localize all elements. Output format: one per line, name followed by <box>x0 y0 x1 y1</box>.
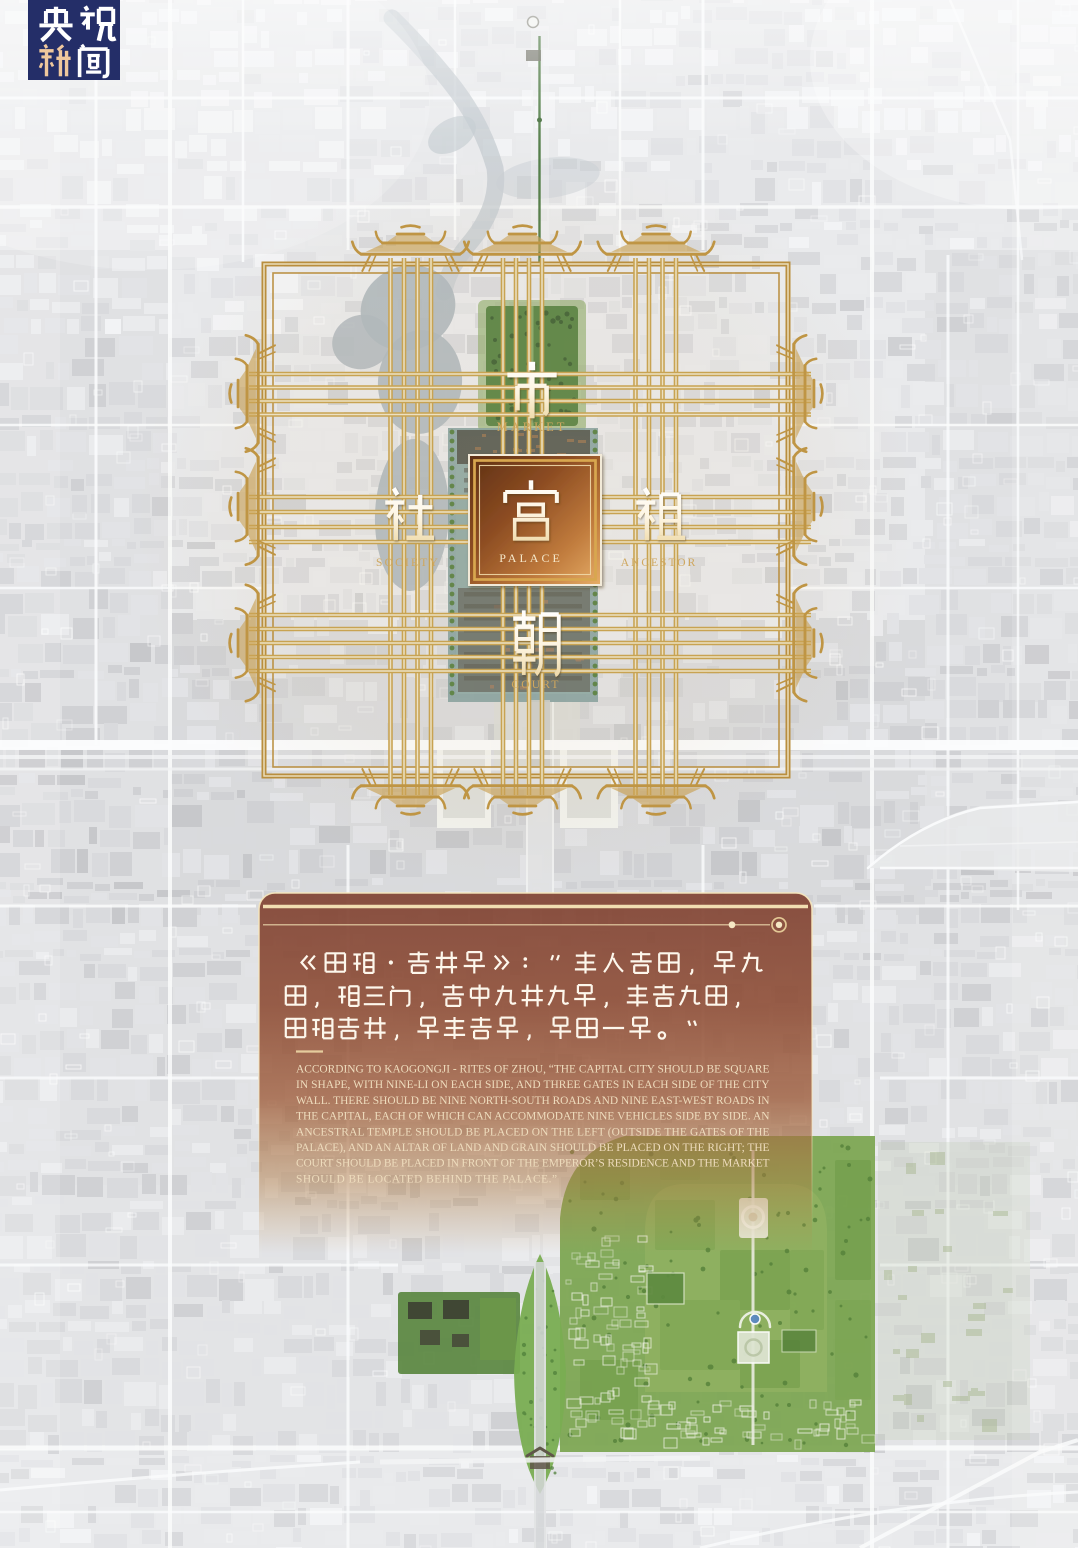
svg-text:SHOULD BE LOCATED BEHIND THE P: SHOULD BE LOCATED BEHIND THE PALACE.” <box>296 1173 558 1185</box>
svg-text:WALL. THERE SHOULD BE NINE NOR: WALL. THERE SHOULD BE NINE NORTH-SOUTH R… <box>296 1095 770 1107</box>
svg-text:ANCESTRAL TEMPLE SHOULD BE PLA: ANCESTRAL TEMPLE SHOULD BE PLACED ON THE… <box>296 1126 770 1138</box>
svg-text:COURT: COURT <box>511 679 560 691</box>
svg-text:SOCIETY: SOCIETY <box>376 557 440 569</box>
svg-text:ACCORDING TO KAOGONGJI - RITES: ACCORDING TO KAOGONGJI - RITES OF ZHOU, … <box>296 1064 770 1076</box>
svg-text:ANCESTOR: ANCESTOR <box>621 557 698 569</box>
svg-text:THE CAPITAL, EACH OF WHICH CAN: THE CAPITAL, EACH OF WHICH CAN ACCOMMODA… <box>296 1111 770 1123</box>
svg-text:PALACE: PALACE <box>499 551 563 565</box>
svg-text:COURT SHOULD BE PLACED IN FRON: COURT SHOULD BE PLACED IN FRONT OF THE E… <box>296 1158 770 1170</box>
svg-text:PALACE), AND AN ALTAR OF LAND: PALACE), AND AN ALTAR OF LAND AND GRAIN … <box>296 1142 770 1154</box>
svg-text:MARKET: MARKET <box>497 420 568 434</box>
svg-text:IN SHAPE, WITH NINE-LI ON EACH: IN SHAPE, WITH NINE-LI ON EACH SIDE, AND… <box>296 1079 770 1091</box>
